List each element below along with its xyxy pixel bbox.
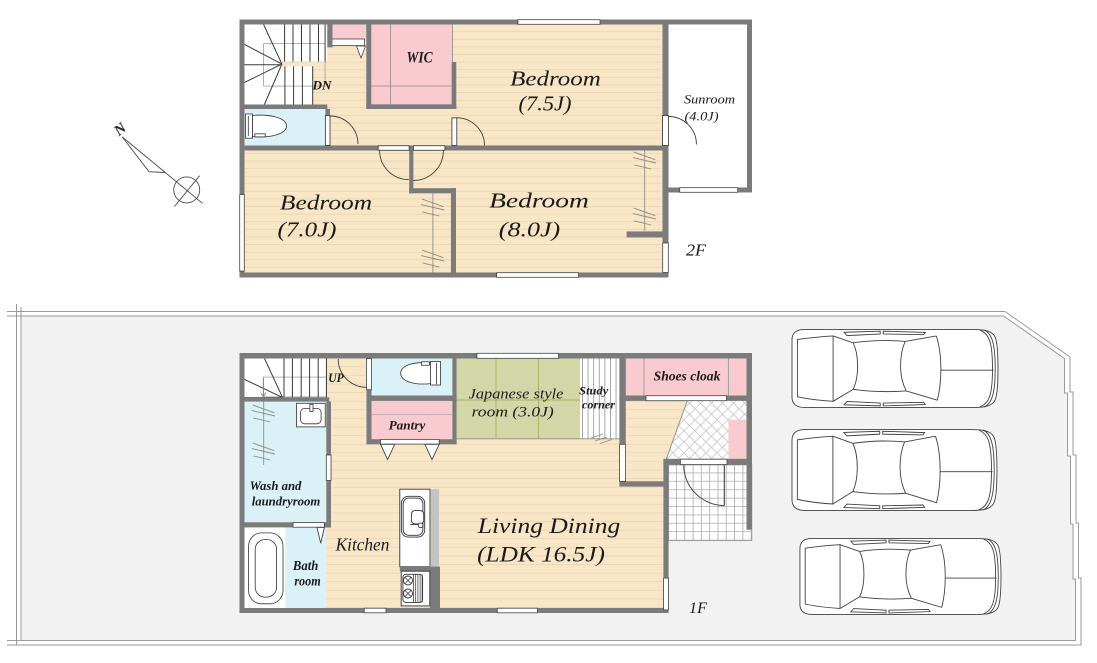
svg-text:Pantry: Pantry [389,418,426,433]
svg-text:(8.0J): (8.0J) [499,219,561,242]
svg-text:Kitchen: Kitchen [335,534,390,554]
svg-text:(LDK 16.5J): (LDK 16.5J) [477,543,605,567]
svg-text:(4.0J): (4.0J) [684,109,718,124]
svg-text:Shoes cloak: Shoes cloak [654,368,721,383]
svg-text:Bedroom: Bedroom [510,66,601,90]
svg-text:Living Dining: Living Dining [477,515,621,539]
svg-text:corner: corner [582,398,615,412]
svg-text:Bedroom: Bedroom [280,191,372,214]
svg-text:(7.5J): (7.5J) [518,92,571,115]
svg-text:2F: 2F [686,241,706,259]
svg-text:room: room [294,573,320,589]
svg-text:room (3.0J): room (3.0J) [472,403,554,420]
svg-text:Bath: Bath [292,557,318,573]
svg-text:(7.0J): (7.0J) [278,217,337,241]
svg-text:UP: UP [328,370,344,385]
svg-text:Bedroom: Bedroom [489,189,589,212]
svg-text:WIC: WIC [406,50,432,67]
svg-text:laundryroom: laundryroom [252,494,321,508]
svg-text:Study: Study [579,384,609,398]
svg-text:1F: 1F [689,600,707,617]
svg-text:Sunroom: Sunroom [684,92,735,106]
svg-text:Japanese style: Japanese style [469,386,564,402]
svg-text:N: N [111,119,131,140]
svg-text:DN: DN [312,78,333,93]
svg-text:Wash and: Wash and [250,479,302,493]
